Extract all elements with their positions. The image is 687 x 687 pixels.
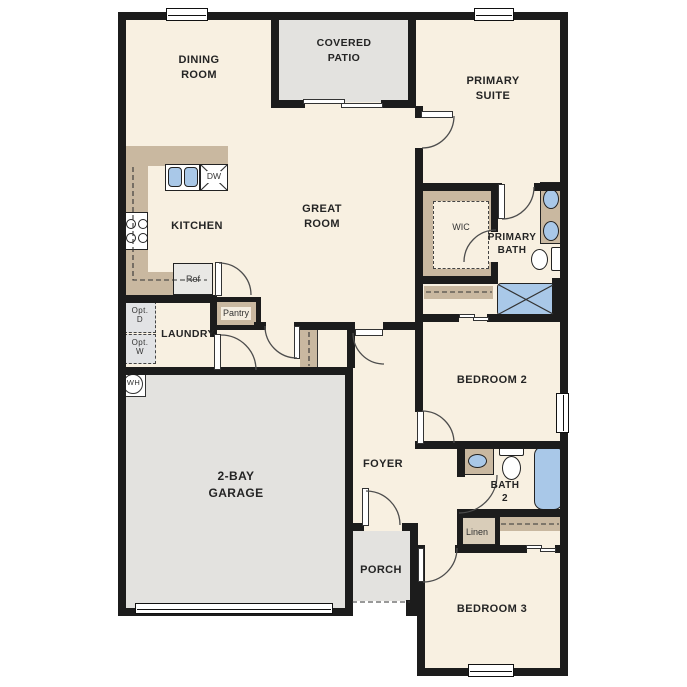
pantry-label: Pantry bbox=[221, 307, 251, 320]
bedroom2-closet-shelf bbox=[424, 286, 493, 299]
wall-bed2-top-l bbox=[415, 314, 459, 322]
wall bbox=[495, 517, 500, 545]
kitchen-hall-door-panel bbox=[215, 262, 222, 296]
primary-suite-door-panel bbox=[421, 111, 453, 118]
wic-label: WIC bbox=[452, 221, 470, 234]
wall-hall-stub bbox=[254, 322, 266, 330]
walk-in-shower bbox=[497, 283, 555, 316]
bedroom2-label: BEDROOM 2 bbox=[457, 373, 527, 388]
bathtub bbox=[534, 446, 563, 510]
sink-basin-right bbox=[184, 167, 198, 187]
covered-patio-label: COVERED PATIO bbox=[317, 36, 372, 65]
primary-sink-2 bbox=[543, 221, 559, 241]
wall-closet3-bottom-r bbox=[555, 545, 567, 553]
wh-label: WH bbox=[127, 379, 140, 388]
bedroom3-closet-bypass-2 bbox=[540, 548, 556, 552]
wall-suite-south-r bbox=[534, 183, 560, 191]
wall-bath2-south bbox=[457, 509, 567, 517]
kitchen-label: KITCHEN bbox=[171, 219, 223, 234]
sink-basin-left bbox=[168, 167, 182, 187]
wall-garage-top bbox=[118, 367, 353, 375]
linen-label: Linen bbox=[466, 526, 488, 539]
ref-label: Ref bbox=[186, 273, 200, 286]
burner-1 bbox=[126, 219, 136, 229]
wall-kitchen-laundry bbox=[118, 295, 217, 303]
wall-garage-right bbox=[345, 367, 353, 616]
wall-shower-right bbox=[552, 278, 560, 318]
patio-slider-left bbox=[303, 99, 345, 104]
bedroom2-closet-bypass-2 bbox=[473, 317, 489, 321]
bedroom3-window bbox=[468, 664, 514, 677]
wall-patio-bottom-r bbox=[381, 100, 416, 108]
wall-bath2-west bbox=[457, 441, 465, 477]
garage-door bbox=[135, 603, 333, 614]
laundry-label: LAUNDRY bbox=[161, 327, 215, 342]
wall-patio-bottom-l bbox=[271, 100, 305, 108]
bedroom2-window bbox=[556, 393, 569, 433]
wall-wic-bottom bbox=[419, 276, 498, 284]
entry-door-panel bbox=[362, 488, 369, 526]
wall-patio-right bbox=[408, 12, 416, 108]
laundry-door-panel bbox=[214, 334, 221, 370]
primary-bath-door-panel bbox=[498, 184, 505, 219]
dining-room-label: DINING ROOM bbox=[179, 53, 220, 84]
opt-d-label: Opt. D bbox=[132, 306, 149, 324]
bedroom2-door-panel bbox=[417, 411, 424, 444]
dining-window bbox=[166, 8, 208, 21]
wall-right bbox=[560, 12, 568, 676]
dw-label: DW bbox=[207, 171, 221, 183]
wall-linen-west bbox=[457, 511, 463, 545]
wall-porch-corner bbox=[406, 600, 425, 616]
great-room-label: GREAT ROOM bbox=[302, 202, 342, 233]
wall-hall-top bbox=[294, 322, 350, 330]
bath2-sink bbox=[468, 454, 487, 468]
bedroom3-label: BEDROOM 3 bbox=[457, 602, 527, 617]
bath2-toilet-bowl bbox=[502, 456, 521, 480]
coat-closet-shelf bbox=[300, 330, 318, 367]
burner-4 bbox=[138, 233, 148, 243]
hall-door-panel bbox=[294, 326, 300, 359]
wall-porch-right bbox=[410, 523, 418, 610]
burner-2 bbox=[138, 219, 148, 229]
primary-suite-window bbox=[474, 8, 514, 21]
wall-bed2-top-r bbox=[487, 314, 568, 322]
primary-bath-label: PRIMARY BATH bbox=[488, 231, 537, 257]
bedroom3-closet-shelf bbox=[500, 517, 560, 531]
primary-sink-1 bbox=[543, 189, 559, 209]
wall-wic-right-u bbox=[491, 191, 498, 232]
foyer-label: FOYER bbox=[363, 457, 403, 472]
bath2-label: BATH 2 bbox=[491, 479, 520, 505]
wall-left bbox=[118, 12, 126, 616]
foyer-door-panel bbox=[355, 329, 383, 336]
floor-plan: DINING ROOM COVERED PATIO PRIMARY SUITE … bbox=[0, 0, 687, 687]
wall-patio-left bbox=[271, 12, 279, 108]
porch-label: PORCH bbox=[360, 563, 402, 578]
wall-bed2-south bbox=[415, 441, 560, 449]
burner-3 bbox=[126, 233, 136, 243]
wall-suite-south-l bbox=[419, 183, 502, 191]
garage-label: 2-BAY GARAGE bbox=[208, 468, 263, 502]
wic-floor bbox=[433, 201, 489, 269]
wall-closet3-bottom-l bbox=[455, 545, 527, 553]
primary-suite-label: PRIMARY SUITE bbox=[466, 74, 519, 105]
opt-w-label: Opt. W bbox=[132, 338, 149, 356]
patio-slider-right bbox=[341, 103, 383, 108]
wall-closet-right bbox=[347, 322, 355, 368]
bedroom3-door-panel bbox=[418, 548, 424, 582]
